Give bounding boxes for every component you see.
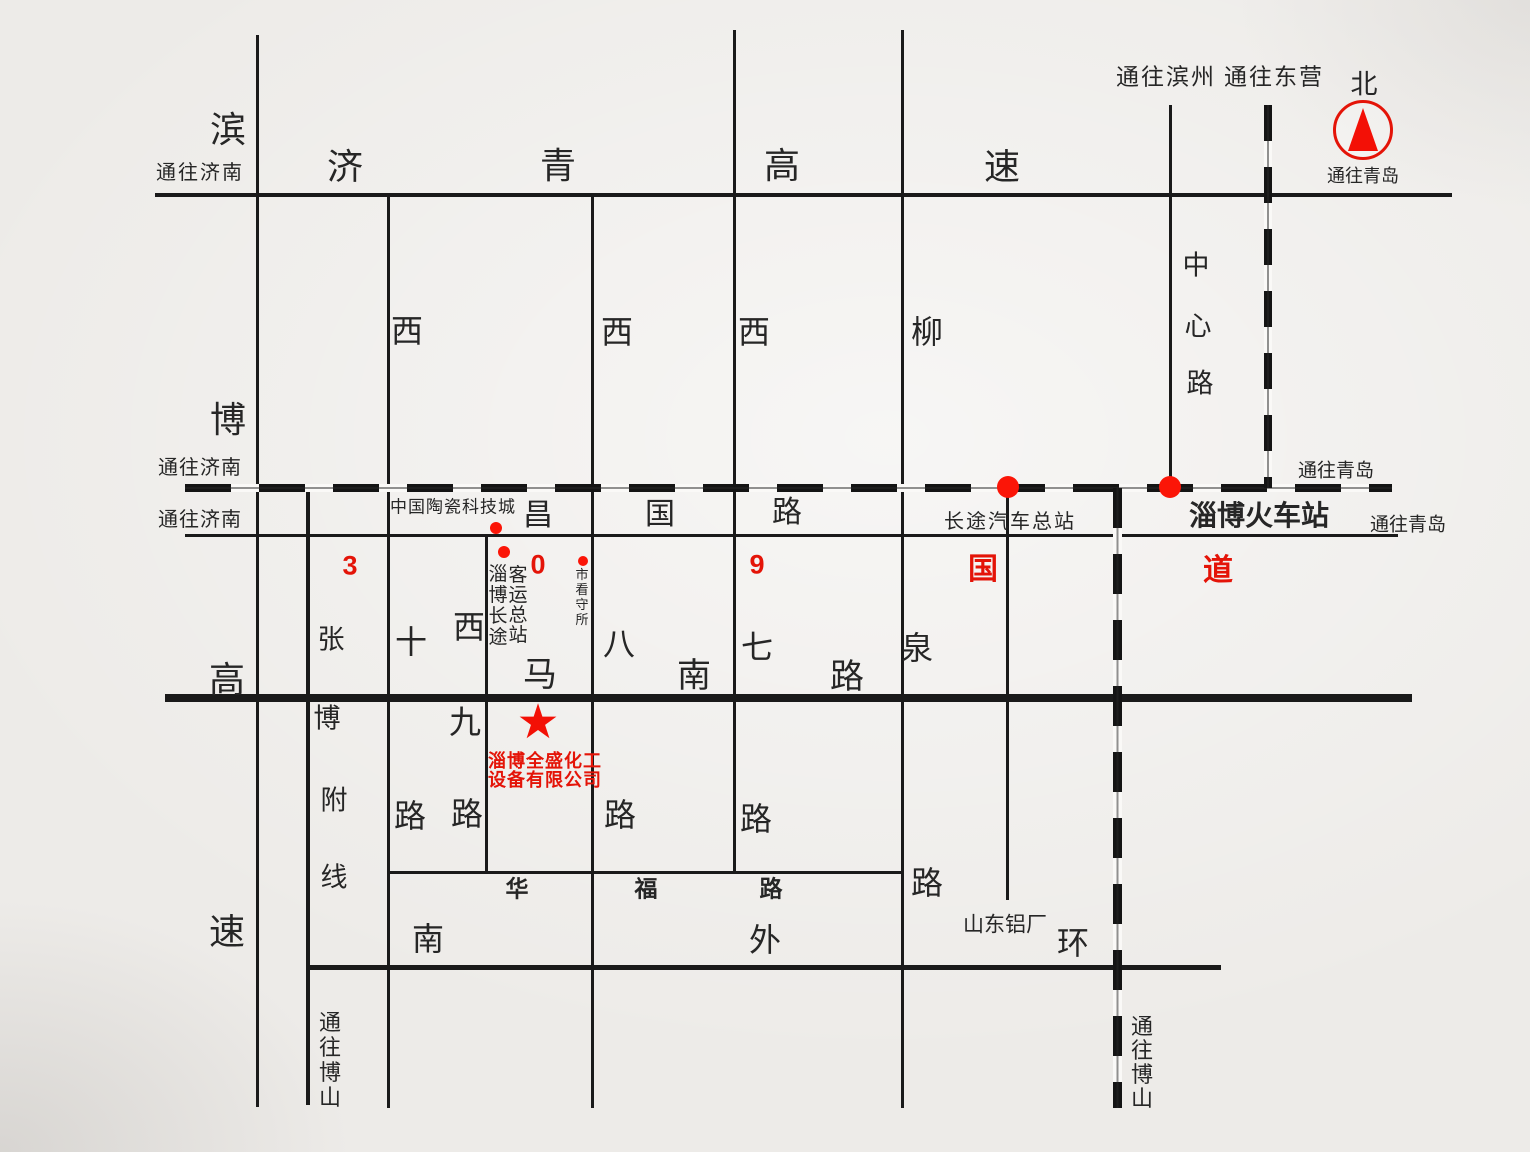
- g309-char-dao: 道: [1203, 556, 1233, 586]
- south-outer-ring-line: [308, 965, 1221, 970]
- to-jinan-railway-label: 通往济南: [158, 458, 242, 478]
- liuquan-road-line: [901, 30, 904, 1108]
- detention-house-label: 市看守所: [574, 567, 590, 627]
- xi-qi-road-line: [733, 30, 736, 873]
- waihuan-char-nan: 南: [412, 923, 444, 955]
- xijiu-char-jiu: 九: [449, 706, 481, 738]
- waihuan-char-huan: 环: [1057, 927, 1089, 959]
- zhangbo-char-zhang: 张: [318, 627, 345, 654]
- zibo-railway-station-label: 淄博火车站: [1189, 502, 1329, 530]
- zhongxin-char-zhong: 中: [1183, 253, 1210, 280]
- bus-terminal-west-dot: [498, 546, 510, 558]
- to-qingdao-railway-label: 通往青岛: [1298, 462, 1374, 481]
- bus-terminal-label: 长途汽车总站: [944, 512, 1076, 532]
- xiba-char-ba: 八: [603, 628, 635, 660]
- huafu-road-line: [389, 871, 903, 874]
- bus-terminal-road-line: [1006, 488, 1009, 900]
- huafu-char-fu: 福: [635, 878, 658, 901]
- jiqing-char-ji: 济: [327, 149, 363, 185]
- to-jinan-changguo-label: 通往济南: [158, 510, 242, 530]
- jiqing-char-gao: 高: [764, 148, 800, 184]
- map-canvas: 通往济南济青高速通往滨州通往东营北通往青岛通往济南通往济南中国陶瓷科技城昌国路长…: [0, 0, 1530, 1152]
- to-qingdao-compass-label: 通往青岛: [1327, 167, 1399, 185]
- zibo-bus-terminal-col-right: 客运总站: [507, 566, 529, 646]
- railway-station-railway-dot: [1159, 476, 1181, 498]
- g309-char-3: 3: [342, 553, 357, 580]
- jiqing-char-qing: 青: [540, 148, 576, 184]
- railway-vertical-north: [1264, 105, 1272, 488]
- railway-vertical-south: [1113, 488, 1122, 1108]
- manan-char-ma: 马: [523, 658, 557, 692]
- bus-station-railway-dot: [997, 476, 1019, 498]
- to-dongying-label: 通往东营: [1224, 66, 1324, 89]
- binbo-expressway-line: [256, 35, 259, 1107]
- ceramic-city-label: 中国陶瓷科技城: [390, 499, 516, 516]
- company-name-line1: 淄博全盛化工: [488, 752, 602, 770]
- xishi-char-lu: 路: [394, 800, 426, 832]
- north-label: 北: [1351, 72, 1378, 99]
- detention-house-dot: [578, 556, 588, 566]
- xishi-char-shi: 十: [395, 626, 427, 658]
- to-qingdao-changguo-label: 通往青岛: [1370, 516, 1446, 535]
- xiqi-char-lu: 路: [740, 803, 772, 835]
- liuquan-char-liu: 柳: [911, 316, 943, 348]
- binbo-char-su: 速: [209, 914, 245, 950]
- zhongxin-char-lu: 路: [1187, 371, 1214, 398]
- to-binzhou-label: 通往滨州: [1116, 66, 1216, 89]
- zhongxin-road-line: [1169, 105, 1172, 490]
- company-name-line2: 设备有限公司: [488, 771, 602, 789]
- zibo-bus-terminal-col-left: 淄博长途: [487, 564, 509, 648]
- xi-shi-road-line: [387, 197, 390, 1108]
- to-boshan-right-label: 通往博山: [1130, 1015, 1155, 1111]
- xiqi-char-xi: 西: [738, 316, 770, 348]
- shandong-aluminum-label: 山东铝厂: [963, 915, 1047, 936]
- manan-road-line: [165, 694, 1412, 702]
- g309-char-9: 9: [749, 552, 764, 579]
- zhangbo-char-bo: 博: [314, 706, 341, 733]
- xiqi-char-qi: 七: [741, 631, 773, 663]
- xijiu-char-xi: 西: [453, 611, 485, 643]
- g309-char-0: 0: [530, 552, 545, 579]
- zhongxin-char-xin: 心: [1185, 314, 1212, 341]
- zhangbo-char-xian: 线: [321, 865, 348, 892]
- binbo-char-bin: 滨: [210, 112, 246, 148]
- to-jinan-expressway-label: 通往济南: [156, 163, 244, 183]
- jiqing-char-su: 速: [984, 149, 1020, 185]
- changguo-char-lu: 路: [772, 498, 802, 528]
- manan-char-lu: 路: [830, 660, 864, 694]
- huafu-char-lu: 路: [760, 878, 783, 901]
- changguo-road-line: [185, 534, 1398, 537]
- to-boshan-left-label: 通往博山: [318, 1010, 343, 1110]
- binbo-char-bo: 博: [210, 402, 246, 438]
- changguo-char-guo: 国: [645, 500, 675, 530]
- company-star-marker: ★: [516, 698, 559, 746]
- xishi-char-xi: 西: [391, 315, 423, 347]
- railway-horizontal: [185, 484, 1392, 492]
- waihuan-char-wai: 外: [749, 924, 781, 956]
- xijiu-char-lu: 路: [451, 798, 483, 830]
- compass-north-needle-icon: [1348, 108, 1378, 151]
- xi-ba-road-line: [591, 197, 594, 1108]
- xiba-char-lu: 路: [604, 799, 636, 831]
- binbo-char-gao: 高: [209, 662, 245, 698]
- liuquan-char-quan: 泉: [901, 632, 933, 664]
- zhangbo-branch-line: [306, 490, 310, 1105]
- huafu-char-hua: 华: [506, 878, 529, 901]
- jiqing-expressway-line: [155, 193, 1452, 197]
- changguo-char-chang: 昌: [523, 501, 553, 531]
- liuquan-char-lu: 路: [911, 867, 943, 899]
- xiba-char-xi: 西: [601, 316, 633, 348]
- manan-char-nan: 南: [677, 659, 711, 693]
- ceramic-city-dot: [490, 522, 502, 534]
- zhangbo-char-fu: 附: [321, 788, 348, 815]
- g309-char-guo: 国: [968, 555, 998, 585]
